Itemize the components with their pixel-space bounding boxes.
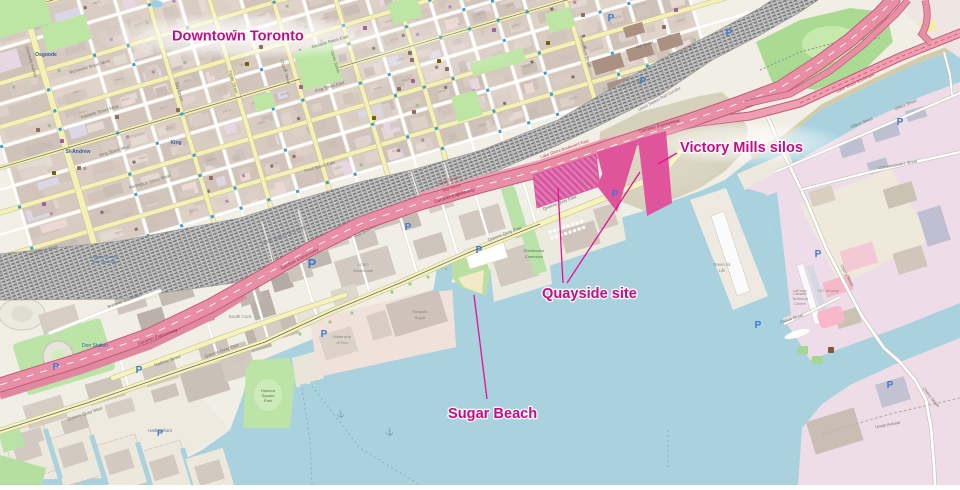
svg-text:Victory Mills silos: Victory Mills silos <box>680 140 803 156</box>
svg-text:Redpath: Redpath <box>412 309 427 314</box>
svg-text:Downtown Toronto: Downtown Toronto <box>172 29 304 45</box>
svg-text:LCBO: LCBO <box>358 262 369 267</box>
svg-text:P: P <box>887 380 894 391</box>
svg-text:P: P <box>897 117 904 128</box>
svg-text:King: King <box>170 140 181 146</box>
svg-text:P: P <box>612 189 619 200</box>
svg-text:Technical: Technical <box>792 297 808 301</box>
svg-text:Don Station: Don Station <box>82 343 108 349</box>
svg-text:P: P <box>53 362 60 373</box>
svg-text:Warehouse: Warehouse <box>353 268 374 273</box>
svg-text:Blue Jays Way: Blue Jays Way <box>93 260 118 264</box>
svg-text:Quayside site: Quayside site <box>542 286 637 302</box>
svg-text:Sherbourne: Sherbourne <box>524 248 546 253</box>
svg-text:P: P <box>136 365 143 376</box>
svg-text:P: P <box>815 249 822 260</box>
svg-text:P: P <box>726 28 733 39</box>
svg-text:Life: Life <box>719 268 726 273</box>
svg-text:Rogers Centre: Rogers Centre <box>93 255 118 259</box>
svg-text:Park: Park <box>264 398 272 403</box>
svg-text:Sugar Beach: Sugar Beach <box>448 406 537 422</box>
svg-text:P: P <box>405 222 412 233</box>
svg-text:P: P <box>321 329 328 340</box>
svg-text:P: P <box>755 320 762 331</box>
svg-text:Commons: Commons <box>525 254 543 259</box>
svg-text:Green for: Green for <box>713 262 731 267</box>
svg-text:Sugar: Sugar <box>415 315 426 320</box>
svg-text:Harbourfront: Harbourfront <box>148 428 172 433</box>
svg-text:T&T Grocery: T&T Grocery <box>817 289 839 293</box>
svg-text:P: P <box>476 245 483 256</box>
svg-text:of Fun: of Fun <box>336 340 347 345</box>
svg-text:P: P <box>308 256 317 271</box>
svg-text:St-Andrew: St-Andrew <box>66 149 91 155</box>
svg-text:Centre: Centre <box>794 302 805 306</box>
svg-text:South Core: South Core <box>229 314 252 319</box>
svg-text:Osgoode: Osgoode <box>35 52 57 58</box>
svg-text:Canada: Canada <box>793 292 807 296</box>
svg-text:P: P <box>608 13 615 24</box>
svg-text:⚓: ⚓ <box>336 409 345 418</box>
svg-text:Waterside: Waterside <box>333 334 352 339</box>
svg-text:⚓: ⚓ <box>385 427 394 436</box>
